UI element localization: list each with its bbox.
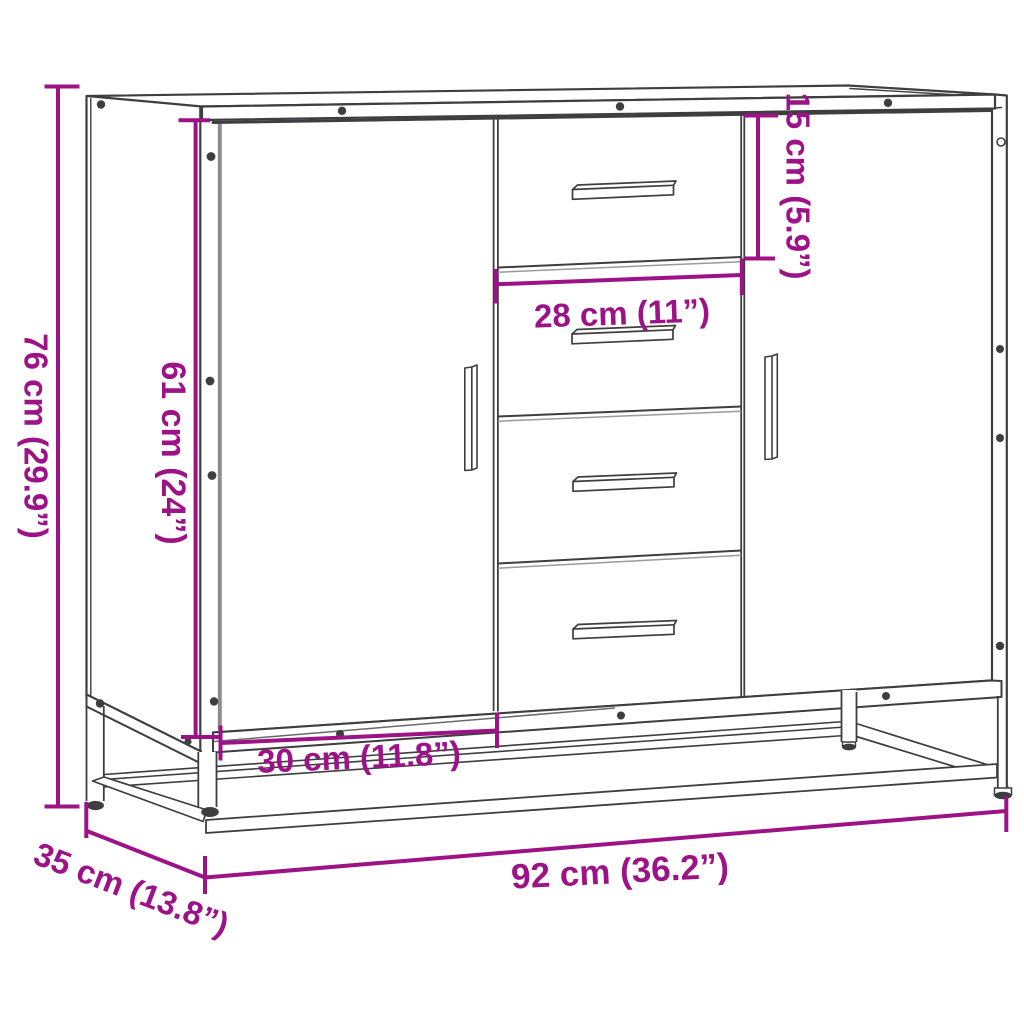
svg-text:61 cm (24”): 61 cm (24”) bbox=[154, 361, 192, 544]
svg-text:28 cm (11”): 28 cm (11”) bbox=[533, 291, 710, 334]
svg-text:76 cm (29.9”): 76 cm (29.9”) bbox=[18, 333, 55, 538]
svg-text:15 cm (5.9”): 15 cm (5.9”) bbox=[780, 92, 817, 279]
